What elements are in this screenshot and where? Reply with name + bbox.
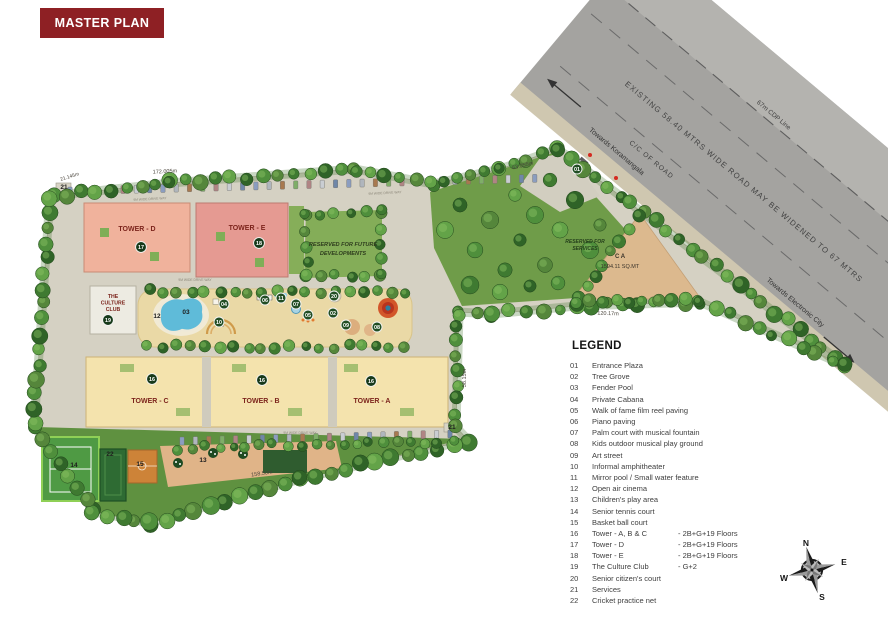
legend-name: Walk of fame film reel paving: [592, 406, 678, 415]
legend-num: 06: [570, 417, 592, 426]
tree-highlight: [614, 236, 621, 243]
tree-highlight: [194, 176, 202, 184]
tree-highlight: [301, 210, 306, 215]
tree-highlight: [400, 343, 405, 348]
tree-highlight: [172, 289, 178, 295]
culture-club-label: CLUB: [106, 307, 121, 313]
tree-highlight: [341, 442, 346, 447]
tree-highlight: [61, 191, 69, 199]
plan-marker-num: 16: [149, 377, 155, 383]
legend-title: LEGEND: [572, 340, 870, 352]
tree-highlight: [211, 173, 217, 179]
legend-name: Basket ball court: [592, 518, 678, 527]
tree-highlight: [421, 440, 426, 445]
tree-highlight: [35, 361, 41, 367]
tree-highlight: [37, 285, 45, 293]
tree-highlight: [553, 278, 560, 285]
tree-highlight: [412, 174, 419, 181]
plan-marker-num: 07: [293, 302, 299, 308]
tree-highlight: [595, 220, 601, 226]
tree-highlight: [280, 479, 287, 486]
tree-highlight: [43, 224, 49, 230]
legend-row: 05Walk of fame film reel paving: [570, 405, 870, 416]
courtyard: [100, 228, 109, 237]
tree-highlight: [290, 170, 295, 175]
tree-highlight: [598, 298, 604, 304]
legend-row: 09Art street: [570, 450, 870, 461]
tree-highlight: [354, 457, 362, 465]
tree-highlight: [607, 247, 612, 252]
tree-highlight: [510, 190, 516, 196]
legend-num: 19: [570, 562, 592, 571]
master-plan-title: MASTER PLAN: [40, 8, 164, 38]
legend-row: 16Tower - A, B & C- 2B+G+19 Floors: [570, 528, 870, 539]
tree-highlight: [200, 342, 206, 348]
tree-highlight: [695, 298, 700, 303]
plan-marker-num: 16: [259, 378, 265, 384]
tree-highlight: [625, 299, 631, 305]
tree-highlight: [315, 345, 320, 350]
tree-highlight: [56, 458, 63, 465]
reserved-services-label: SERVICES: [572, 246, 598, 252]
legend-name: Senior tennis court: [592, 507, 678, 516]
legend-name: Art street: [592, 451, 678, 460]
plan-marker-num: 05: [305, 313, 311, 319]
parked-car: [320, 180, 324, 188]
tree-highlight: [463, 278, 472, 287]
tree-highlight: [661, 226, 667, 232]
page-title: MASTER PLAN: [55, 16, 150, 30]
tree-highlight: [385, 344, 390, 349]
courtyard: [150, 252, 159, 261]
legend-name: Piano paving: [592, 417, 678, 426]
tree-highlight: [681, 294, 688, 301]
tree-highlight: [783, 313, 790, 320]
tree-highlight: [638, 297, 643, 302]
legend-row: 02Tree Grove: [570, 371, 870, 382]
tree-highlight: [143, 515, 152, 524]
tree-highlight: [229, 342, 235, 348]
legend-row: 19The Culture Club- G+2: [570, 561, 870, 572]
legend-suffix: - 2B+G+19 Floors: [678, 529, 738, 538]
parked-car: [233, 436, 237, 444]
plan-marker-num: 08: [374, 325, 380, 331]
parked-car: [493, 175, 497, 183]
plan-marker: 21: [60, 184, 68, 191]
legend-name: Kids outdoor musical play ground: [592, 439, 678, 448]
parked-car: [341, 433, 345, 441]
gate-flag: [588, 153, 592, 157]
tree-highlight: [768, 308, 776, 316]
legend-name: Tree Grove: [592, 372, 678, 381]
legend-name: Senior citizen's court: [592, 574, 678, 583]
tree-highlight: [795, 323, 803, 331]
legend-num: 15: [570, 518, 592, 527]
tree-highlight: [216, 343, 222, 349]
culture-club-label: THE: [108, 294, 119, 300]
tree-highlight: [123, 184, 128, 189]
abc-divider: [202, 357, 211, 427]
parked-car: [254, 182, 258, 190]
tree-highlight: [273, 171, 279, 177]
legend-num: 01: [570, 361, 592, 370]
legend-suffix: - G+2: [678, 562, 697, 571]
tower-a-label: TOWER - A: [354, 398, 391, 405]
tree-highlight: [473, 309, 479, 315]
tree-highlight: [165, 178, 171, 184]
plan-marker: 12: [153, 313, 161, 320]
tree-highlight: [572, 299, 578, 305]
tree-highlight: [201, 442, 206, 447]
tree-highlight: [302, 271, 308, 277]
tree-highlight: [735, 279, 743, 287]
tree-highlight: [257, 289, 262, 294]
tree-highlight: [181, 175, 187, 181]
towers-abc-block: [86, 357, 448, 427]
tree-highlight: [30, 418, 38, 426]
tree-highlight: [666, 295, 673, 302]
tree-highlight: [557, 306, 562, 311]
tree-highlight: [268, 440, 273, 445]
legend-name: Tower - E: [592, 551, 678, 560]
tree-highlight: [348, 210, 353, 215]
tree-highlight: [395, 173, 400, 178]
legend-row: 21Services: [570, 584, 870, 595]
tree-highlight: [373, 342, 378, 347]
tree-highlight: [584, 295, 591, 302]
tree-highlight: [495, 164, 500, 169]
tree-highlight: [584, 282, 589, 287]
legend-num: 11: [570, 473, 592, 482]
tower-d-label: TOWER - D: [118, 226, 155, 233]
tree-highlight: [394, 437, 399, 442]
legend-name: Palm court with musical fountain: [592, 428, 678, 437]
tree-highlight: [174, 510, 181, 517]
tree-highlight: [327, 469, 334, 476]
tree-highlight: [256, 345, 261, 350]
tree-highlight: [454, 382, 460, 388]
tree-highlight: [568, 193, 577, 202]
tree-highlight: [320, 165, 327, 172]
culture-club-label: CULTURE: [101, 301, 126, 307]
tree-highlight: [538, 306, 546, 314]
tree-highlight: [303, 343, 308, 348]
courtyard: [344, 364, 358, 372]
plan-marker: 14: [70, 462, 78, 469]
tree-highlight: [675, 235, 681, 241]
legend-panel: LEGEND 01Entrance Plaza02Tree Grove03Fen…: [570, 340, 870, 606]
parked-car: [333, 180, 337, 188]
tree-highlight: [566, 153, 574, 161]
tree-highlight: [407, 438, 412, 443]
tree-highlight: [30, 373, 38, 381]
tree-highlight: [368, 455, 377, 464]
ca-area-label: 1594.11 SQ.MT: [601, 264, 640, 270]
legend-suffix: - 2B+G+19 Floors: [678, 540, 738, 549]
parked-car: [506, 175, 510, 183]
legend-items: 01Entrance Plaza02Tree Grove03Fender Poo…: [570, 360, 870, 606]
tree-highlight: [72, 483, 79, 490]
tree-highlight: [327, 442, 331, 446]
tree-highlight: [138, 182, 144, 188]
tree-highlight: [187, 505, 196, 514]
courtyard: [176, 408, 190, 416]
legend-row: 10Informal amphitheater: [570, 461, 870, 472]
tree-highlight: [462, 436, 471, 445]
tower-b-label: TOWER - B: [242, 398, 279, 405]
tree-highlight: [378, 270, 383, 275]
legend-num: 18: [570, 551, 592, 560]
plan-marker-num: 09: [343, 323, 349, 329]
legend-row: 08Kids outdoor musical play ground: [570, 438, 870, 449]
tree-highlight: [161, 515, 169, 523]
tree-highlight: [317, 272, 323, 278]
legend-row: 18Tower - E- 2B+G+19 Floors: [570, 550, 870, 561]
tree-highlight: [613, 296, 619, 302]
legend-name: Mirror pool / Small water feature: [592, 473, 678, 482]
tree-highlight: [688, 245, 695, 252]
tree-highlight: [309, 471, 317, 479]
tree-highlight: [634, 211, 641, 218]
plan-marker-num: 18: [256, 241, 262, 247]
tree-highlight: [455, 200, 462, 207]
tree-highlight: [106, 186, 113, 193]
plan-marker: 21: [448, 424, 456, 431]
tree-highlight: [500, 265, 507, 272]
plan-marker-num: 10: [216, 320, 222, 326]
dimension-label: 120.17m: [597, 311, 619, 318]
plan-marker-num: 17: [138, 245, 144, 251]
tree-highlight: [602, 183, 608, 189]
parked-car: [354, 432, 358, 440]
dimension-label: 21.145m: [60, 171, 80, 182]
tree-highlight: [102, 511, 109, 518]
legend-num: 16: [570, 529, 592, 538]
dot: [214, 453, 216, 455]
tree-highlight: [402, 290, 407, 295]
tree-highlight: [273, 286, 279, 292]
tree-highlight: [28, 403, 36, 411]
reserved-services-label: RESERVED FOR: [565, 239, 605, 245]
tree-highlight: [76, 186, 83, 193]
parked-car: [300, 434, 304, 442]
tree-highlight: [521, 307, 527, 313]
legend-name: Cricket practice net: [592, 596, 678, 605]
tree-highlight: [366, 168, 372, 174]
tree-highlight: [337, 165, 343, 171]
legend-num: 12: [570, 484, 592, 493]
tree-highlight: [89, 187, 96, 194]
legend-row: 20Senior citizen's court: [570, 573, 870, 584]
dot: [240, 452, 242, 454]
parked-car: [267, 182, 271, 190]
tree-highlight: [224, 171, 231, 178]
tree-highlight: [374, 287, 379, 292]
abc-divider: [328, 357, 337, 427]
tree-highlight: [451, 335, 458, 342]
tree-highlight: [539, 259, 547, 267]
tree-highlight: [433, 439, 438, 444]
tree-highlight: [243, 290, 248, 295]
tower-c-label: TOWER - C: [131, 398, 168, 405]
parked-car: [187, 184, 191, 192]
parked-car: [307, 181, 311, 189]
tree-highlight: [378, 170, 385, 177]
tree-highlight: [768, 332, 773, 337]
tree-highlight: [440, 178, 446, 184]
tree-highlight: [388, 288, 394, 294]
dot: [179, 463, 181, 465]
tree-highlight: [529, 209, 538, 218]
driveway-label: 9M WIDE DRIVE WAY: [283, 431, 317, 435]
tree-highlight: [712, 260, 719, 267]
courtyard: [232, 364, 246, 372]
legend-suffix: - 2B+G+19 Floors: [678, 551, 738, 560]
tree-highlight: [242, 175, 248, 181]
parked-car: [180, 437, 184, 445]
tree-highlight: [37, 269, 44, 276]
tree-highlight: [404, 451, 410, 457]
tree-highlight: [289, 287, 294, 292]
tree-highlight: [545, 175, 552, 182]
tree-highlight: [159, 344, 164, 349]
tree-highlight: [346, 287, 352, 293]
legend-row: 11Mirror pool / Small water feature: [570, 472, 870, 483]
play-equipment: [173, 458, 183, 468]
tree-highlight: [726, 308, 732, 314]
plan-marker: 22: [106, 451, 114, 458]
legend-row: 15Basket ball court: [570, 517, 870, 528]
tree-highlight: [340, 465, 347, 472]
legend-name: Children's play area: [592, 495, 678, 504]
tree-highlight: [313, 440, 318, 445]
legend-name: Services: [592, 585, 678, 594]
tree-highlight: [231, 444, 235, 448]
tree-highlight: [159, 289, 164, 294]
tree-highlight: [44, 207, 52, 215]
parked-car: [519, 175, 523, 183]
tree-highlight: [362, 207, 368, 213]
tree-highlight: [250, 486, 258, 494]
tree-highlight: [346, 340, 351, 345]
legend-num: 14: [570, 507, 592, 516]
parked-car: [220, 436, 224, 444]
parked-car: [227, 183, 231, 191]
parked-car: [360, 179, 364, 187]
tree-highlight: [624, 197, 631, 204]
dot: [210, 451, 212, 453]
tree-highlight: [86, 507, 94, 515]
legend-name: Private Cabana: [592, 395, 678, 404]
tree-highlight: [233, 490, 241, 498]
legend-num: 22: [570, 596, 592, 605]
dot: [175, 461, 177, 463]
tree-highlight: [377, 225, 383, 231]
tree-highlight: [172, 340, 178, 346]
tree-highlight: [625, 225, 631, 231]
legend-name: Informal amphitheater: [592, 462, 678, 471]
tree-highlight: [34, 345, 40, 351]
tree-highlight: [451, 437, 456, 442]
legend-num: 17: [570, 540, 592, 549]
tree-highlight: [480, 167, 486, 173]
tower-d-block: [84, 203, 190, 272]
tree-highlight: [285, 443, 290, 448]
legend-row: 17Tower - D- 2B+G+19 Floors: [570, 539, 870, 550]
tree-highlight: [189, 446, 194, 451]
parked-car: [479, 176, 483, 184]
tree-highlight: [503, 305, 510, 312]
tree-highlight: [329, 209, 335, 215]
parked-car: [373, 179, 377, 187]
tree-highlight: [364, 438, 369, 443]
tree-highlight: [270, 344, 276, 350]
tree-highlight: [143, 341, 148, 346]
tree-highlight: [301, 288, 306, 293]
tree-highlight: [654, 296, 660, 302]
parked-car: [533, 174, 537, 182]
tree-highlight: [255, 441, 260, 446]
tree-highlight: [189, 288, 194, 293]
courtyard: [400, 408, 414, 416]
parked-car: [294, 181, 298, 189]
tree-highlight: [352, 167, 358, 173]
tree-highlight: [469, 244, 477, 252]
tree-highlight: [552, 145, 559, 152]
tree-highlight: [360, 288, 366, 294]
parked-car: [280, 181, 284, 189]
tree-highlight: [199, 287, 205, 293]
film-reel-dot: [312, 319, 315, 322]
courtyard: [216, 232, 225, 241]
legend-name: Tower - A, B & C: [592, 529, 678, 538]
tree-highlight: [330, 345, 335, 350]
tower-e-label: TOWER - E: [229, 225, 266, 232]
tree-highlight: [426, 177, 432, 183]
tree-highlight: [360, 273, 365, 278]
legend-num: 09: [570, 451, 592, 460]
tree-highlight: [453, 174, 459, 180]
tree-highlight: [330, 271, 335, 276]
tree-highlight: [384, 451, 393, 460]
legend-num: 20: [570, 574, 592, 583]
tree-highlight: [218, 445, 222, 449]
legend-row: 13Children's play area: [570, 494, 870, 505]
legend-row: 01Entrance Plaza: [570, 360, 870, 371]
tree-highlight: [240, 444, 245, 449]
tree-highlight: [451, 352, 457, 358]
tree-highlight: [747, 289, 753, 295]
tree-highlight: [450, 410, 456, 416]
reserved-future-label: RESERVED FOR FUTURE: [309, 242, 378, 248]
tree-highlight: [591, 272, 597, 278]
tree-highlight: [454, 311, 460, 317]
tree-highlight: [466, 171, 471, 176]
parked-car: [421, 431, 425, 439]
tree-highlight: [285, 341, 291, 347]
tree-highlight: [204, 499, 213, 508]
tree-highlight: [538, 148, 544, 154]
tree-highlight: [299, 443, 304, 448]
tree-highlight: [486, 308, 494, 316]
legend-row: 14Senior tennis court: [570, 505, 870, 516]
tree-highlight: [755, 323, 762, 330]
plan-marker-num: 16: [368, 379, 374, 385]
tree-highlight: [34, 330, 42, 338]
tree-highlight: [349, 273, 354, 278]
parked-car: [347, 179, 351, 187]
kids-play-center: [385, 305, 390, 310]
